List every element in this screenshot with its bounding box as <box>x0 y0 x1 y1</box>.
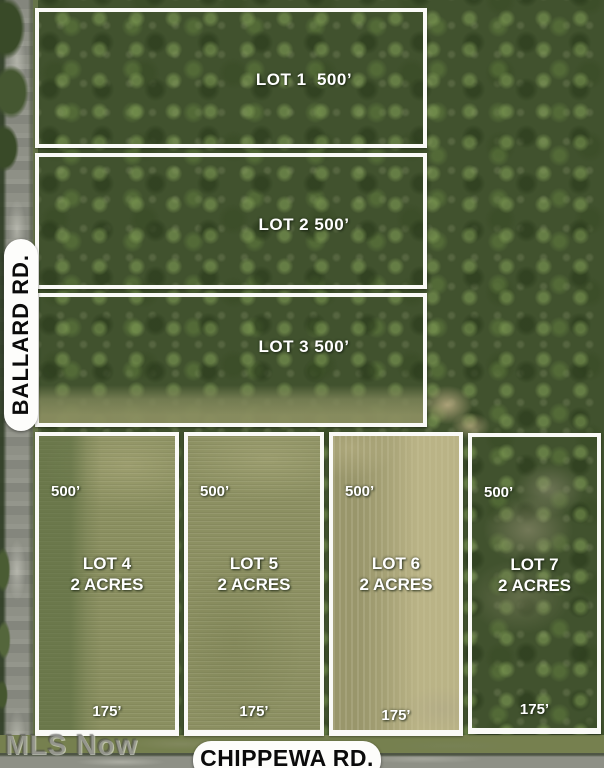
chippewa-road-label: CHIPPEWA RD. <box>200 745 374 768</box>
tree-overhang <box>0 0 32 190</box>
roadside-bushes <box>0 535 14 715</box>
lot-3-label: LOT 3 500’ <box>258 337 349 357</box>
lot-5-name-label: LOT 5 <box>230 554 278 574</box>
lot-7-frontage-label: 175’ <box>520 701 549 718</box>
lot-7-name-label: LOT 7 <box>510 555 558 575</box>
lot-4-name-label: LOT 4 <box>83 554 131 574</box>
lot-6-region: 500’ LOT 6 2 ACRES 175’ <box>329 432 463 736</box>
lot-4-frontage-label: 175’ <box>92 703 121 720</box>
lot-5-region: 500’ LOT 5 2 ACRES 175’ <box>184 432 324 736</box>
ballard-road-sign: BALLARD RD. <box>4 239 38 431</box>
lot-4-region: 500’ LOT 4 2 ACRES 175’ <box>35 432 179 736</box>
lot-4-size-label: 2 ACRES <box>70 575 143 595</box>
chippewa-road-sign: CHIPPEWA RD. <box>193 741 381 768</box>
mls-watermark: MLS Now <box>5 729 138 761</box>
lot-5-depth-label: 500’ <box>200 483 229 500</box>
aerial-lot-map: LOT 1 500’ LOT 2 500’ LOT 3 500’ 500’ LO… <box>0 0 604 768</box>
lot-2-label: LOT 2 500’ <box>258 215 349 235</box>
lot-7-size-label: 2 ACRES <box>498 576 571 596</box>
lot-6-name-label: LOT 6 <box>372 554 420 574</box>
lot-6-depth-label: 500’ <box>345 483 374 500</box>
lot-4-depth-label: 500’ <box>51 483 80 500</box>
lot-3-region: LOT 3 500’ <box>35 293 427 427</box>
lot-5-frontage-label: 175’ <box>239 703 268 720</box>
lot-6-size-label: 2 ACRES <box>359 575 432 595</box>
lot-2-region: LOT 2 500’ <box>35 153 427 289</box>
lot-5-size-label: 2 ACRES <box>217 575 290 595</box>
field-clearing <box>39 385 423 423</box>
lot-1-label: LOT 1 500’ <box>256 70 352 90</box>
lot-7-region: 500’ LOT 7 2 ACRES 175’ <box>468 433 601 734</box>
ballard-road-label: BALLARD RD. <box>8 254 34 415</box>
lot-1-region: LOT 1 500’ <box>35 8 427 148</box>
lot-7-depth-label: 500’ <box>484 484 513 501</box>
lot-6-frontage-label: 175’ <box>381 707 410 724</box>
